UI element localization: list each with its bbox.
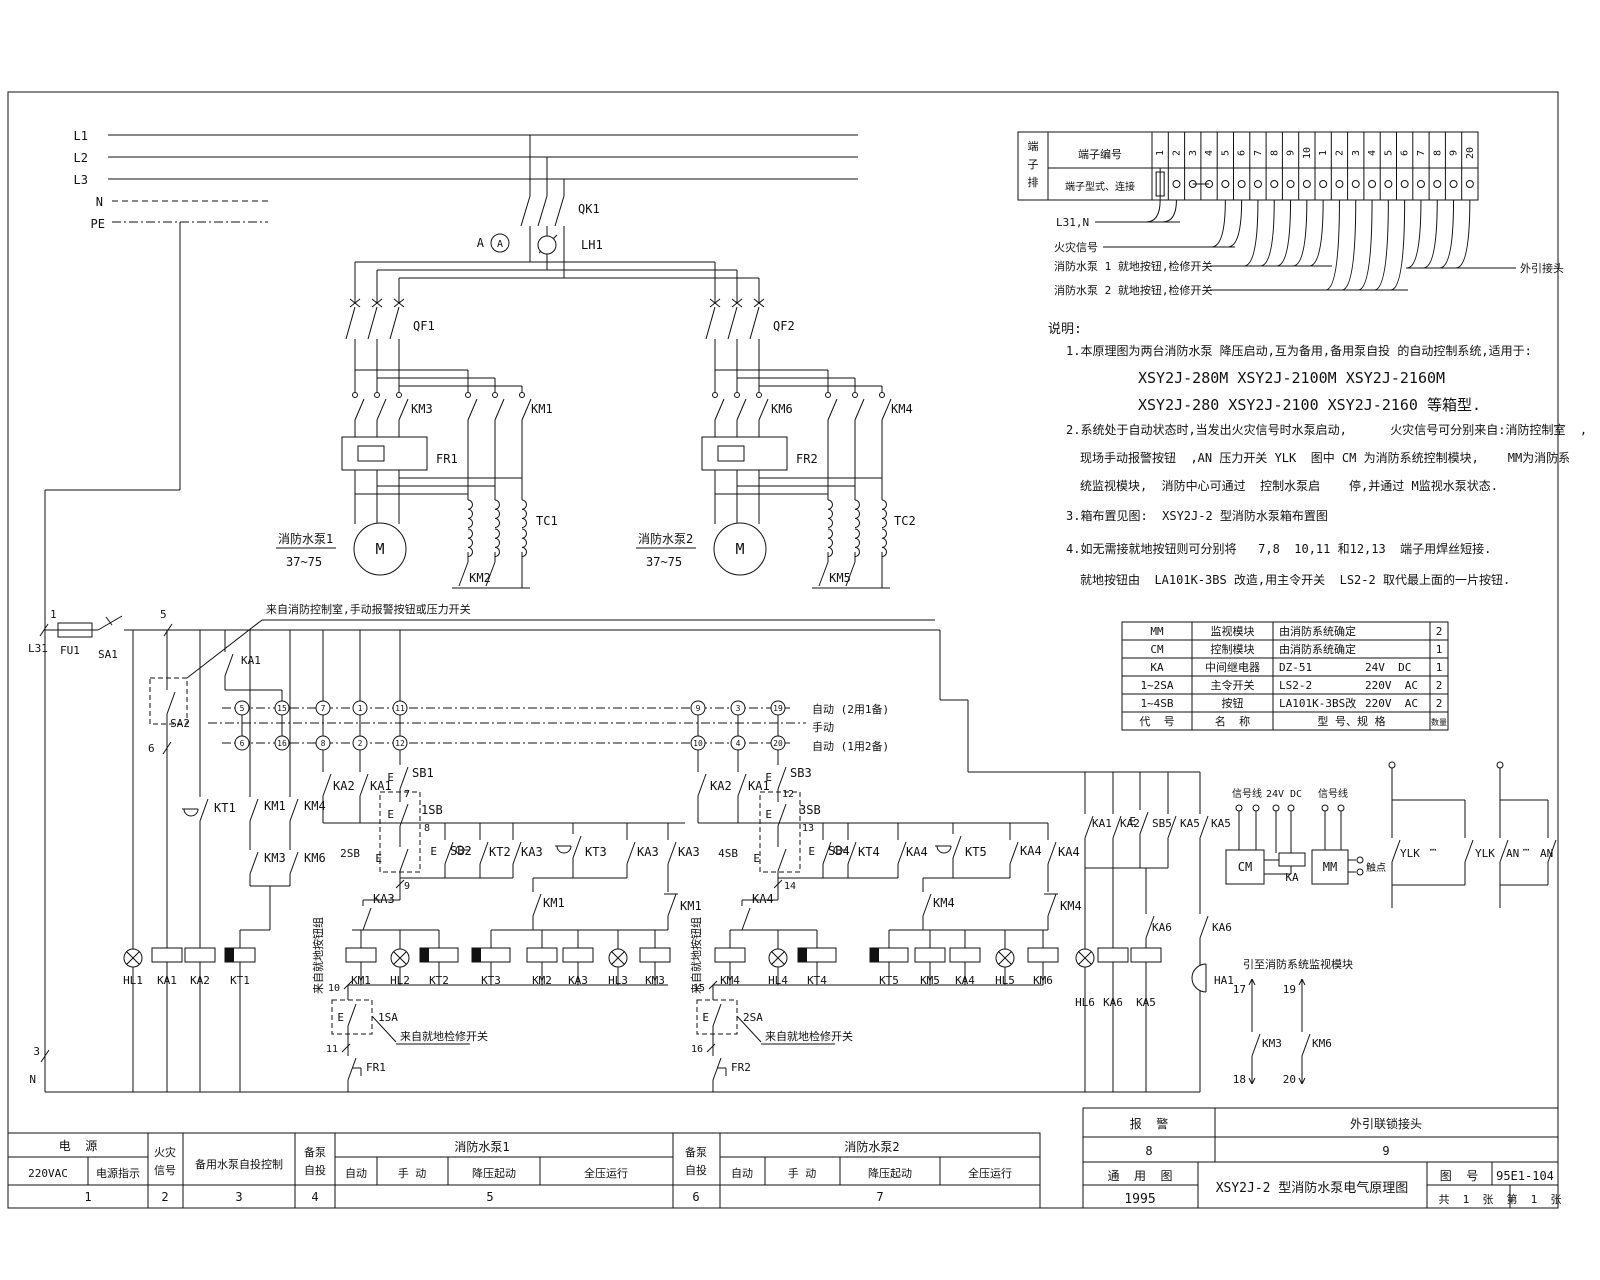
terminal-circle — [1385, 181, 1392, 188]
transformer-coil-icon — [828, 529, 833, 557]
contact-head — [375, 393, 380, 398]
box — [185, 948, 215, 962]
box — [563, 948, 593, 962]
terminal-number: 4 — [1367, 150, 1378, 156]
schematic-label: 来自消防控制室,手动报警按钮或压力开关 — [266, 602, 471, 616]
schematic-label: N — [29, 1073, 36, 1086]
terminal-dot — [1389, 762, 1395, 768]
schematic-label: 6 — [240, 739, 245, 748]
wire — [399, 399, 408, 420]
schematic-label: E — [337, 1011, 344, 1024]
schematic-label: 4 — [736, 739, 741, 748]
terminal-number: 1 — [1318, 150, 1329, 156]
leader-curve — [1423, 200, 1437, 268]
title-alarm: 报 警 — [1130, 1116, 1168, 1131]
schematic-label: 引至消防系统监视模块 — [1243, 957, 1353, 971]
component-cell: 1 — [1436, 661, 1443, 674]
schematic-label: 37~75 — [646, 555, 682, 569]
transformer-coil-icon — [855, 500, 860, 528]
wire — [953, 836, 961, 858]
terminal-number: 2 — [1334, 150, 1345, 156]
schematic-label: 5 — [160, 608, 167, 621]
strip-header: 电 源 — [59, 1139, 97, 1153]
terminal-circle — [1434, 181, 1441, 188]
wire — [290, 799, 298, 821]
transformer-coil-icon — [882, 500, 887, 528]
schematic-label: FU1 — [60, 644, 80, 657]
schematic-label: 手动 — [812, 720, 834, 734]
wire — [706, 307, 715, 339]
strip-cell: 220VAC — [28, 1167, 68, 1180]
drawing-no-label: 图 号 — [1440, 1169, 1478, 1183]
wire — [742, 908, 750, 930]
schematic-label: KM3 — [411, 402, 433, 416]
leader-curve — [1244, 200, 1258, 266]
note-line: XSY2J-280M XSY2J-2100M XSY2J-2160M — [1138, 369, 1445, 387]
wire — [923, 894, 931, 916]
contact-head — [826, 393, 831, 398]
leader-curve — [1407, 200, 1421, 268]
transformer-coil-icon — [468, 529, 473, 557]
schematic-label: 17 — [1233, 983, 1246, 996]
terminal-number: 3 — [1351, 150, 1362, 156]
terminal-number: 1 — [1155, 150, 1166, 156]
component-cell: DZ-51 — [1279, 661, 1312, 674]
component-cell: 主令开关 — [1211, 678, 1255, 692]
schematic-label: E — [765, 808, 772, 821]
terminal-number: 6 — [1400, 150, 1411, 156]
wire — [668, 894, 676, 916]
schematic-label: KT2 — [489, 845, 511, 859]
wire — [225, 654, 233, 676]
wire — [819, 562, 828, 586]
timer-coil-mark — [225, 948, 234, 962]
schematic-label: 3 — [736, 704, 741, 713]
schematic-label: KA3 — [373, 892, 395, 906]
schematic-label: 8 — [321, 739, 326, 748]
schematic-label: HL5 — [995, 974, 1015, 987]
terminal-circle — [1401, 181, 1408, 188]
terminal-circle — [1303, 181, 1310, 188]
schematic-label: KM3 — [264, 851, 286, 865]
schematic-label: E — [387, 808, 394, 821]
terminal-number: 7 — [1416, 150, 1427, 156]
schematic-label: KM5 — [920, 974, 940, 987]
wire — [187, 620, 262, 678]
schematic-label: E — [702, 1011, 709, 1024]
component-cell: LA101K-3BS改 — [1279, 696, 1356, 710]
wire — [348, 1058, 356, 1080]
component-cell: 1~2SA — [1140, 679, 1173, 692]
schematic-label: 3 — [33, 1045, 40, 1058]
component-cell: 监视模块 — [1211, 624, 1255, 638]
strip-cell: 电源指示 — [96, 1166, 140, 1180]
strip-cell: 全压运行 — [584, 1166, 628, 1180]
wire — [495, 399, 504, 420]
sheets-total: 共 1 张 — [1438, 1193, 1493, 1206]
transformer-coil-icon — [495, 529, 500, 557]
schematic-label: KA4 — [1020, 844, 1042, 858]
schematic-label: E — [375, 852, 382, 865]
wire — [390, 307, 399, 339]
schematic-label: FR2 — [731, 1061, 751, 1074]
wire — [778, 767, 786, 789]
box — [527, 948, 557, 962]
component-cell: LS2-2 — [1279, 679, 1312, 692]
wire — [738, 774, 746, 796]
leader-curve — [1228, 200, 1242, 247]
terminal-number: 9 — [1449, 150, 1460, 156]
schematic-label: 10 — [693, 739, 703, 748]
terminal-dot — [1236, 805, 1242, 811]
terminal-dot — [1273, 805, 1279, 811]
contact-head — [520, 393, 525, 398]
strip-cell: 降压起动 — [472, 1166, 516, 1180]
terminal-dot — [1322, 805, 1328, 811]
schematic-label: KA1 — [157, 974, 177, 987]
transformer-coil-icon — [522, 529, 527, 557]
schematic-label: FR1 — [436, 452, 458, 466]
component-cell: 2 — [1436, 625, 1443, 638]
schematic-label: HL4 — [768, 974, 788, 987]
contact-head — [757, 393, 762, 398]
note-line: XSY2J-280 XSY2J-2100 XSY2J-2160 等箱型. — [1138, 396, 1481, 414]
schematic-label: E — [430, 845, 437, 858]
wire — [167, 692, 175, 714]
schematic-label: KT2 — [429, 974, 449, 987]
component-cell: 24V DC — [1365, 661, 1411, 674]
component-cell: 220V AC — [1365, 697, 1418, 710]
wire — [715, 399, 724, 420]
wire — [521, 196, 530, 226]
schematic-label: KA5 — [1211, 817, 1231, 830]
wire — [368, 307, 377, 339]
strip-cell: 自动 — [345, 1167, 367, 1180]
schematic-label: 1 — [358, 704, 363, 713]
terminal-number: 6 — [1237, 150, 1248, 156]
note-line: 现场手动报警按钮 ,AN 压力开关 YLK 图中 CM 为消防系统控制模块, M… — [1080, 450, 1570, 465]
wire — [522, 399, 531, 420]
schematic-label: CM — [1238, 860, 1252, 874]
terminal-circle — [1352, 181, 1359, 188]
schematic-label: ⋯ — [1523, 843, 1530, 856]
strip-cell: 手 动 — [788, 1166, 817, 1180]
schematic-label: SB2 — [450, 844, 472, 858]
schematic-label: 16 — [277, 739, 287, 748]
wire — [1200, 916, 1208, 938]
schematic-label: KM2 — [532, 974, 552, 987]
schematic-label: 信号线 — [1318, 787, 1348, 800]
wire — [200, 799, 208, 821]
schematic-label: AN — [1540, 847, 1553, 860]
wire — [855, 399, 864, 420]
schematic-label: PE — [91, 217, 105, 231]
title-type: 通 用 图 — [1108, 1169, 1173, 1183]
contact-head — [353, 393, 358, 398]
component-cell: 由消防系统确定 — [1279, 624, 1356, 638]
contact-head — [466, 393, 471, 398]
wire — [355, 399, 364, 420]
schematic-label: LH1 — [581, 238, 603, 252]
schematic-label: KM1 — [264, 799, 286, 813]
leader-curve — [1162, 200, 1176, 222]
wire — [750, 307, 759, 339]
wire — [1252, 1034, 1260, 1056]
strip-number: 7 — [876, 1190, 883, 1204]
drawing-sheet: XSY2J-2 型消防水泵电气原理图 123456789101234567892… — [0, 0, 1600, 1280]
terminal-group-label: 火灾信号 — [1054, 240, 1098, 254]
schematic-label: 1SA — [378, 1011, 398, 1024]
schematic-label: SB5 — [1152, 817, 1172, 830]
sheet-no: 第 1 张 — [1506, 1192, 1561, 1206]
terminal-number: 3 — [1188, 150, 1199, 156]
schematic-label: 11 — [395, 704, 405, 713]
note-line: 就地按钮由 LA101K-3BS 改造,用主令开关 LS2-2 取代最上面的一片… — [1080, 572, 1510, 587]
wire — [468, 399, 477, 420]
schematic-label: 13 — [802, 823, 814, 834]
wire — [627, 842, 635, 864]
dashed-box — [760, 792, 800, 872]
component-cell: KA — [1150, 661, 1164, 674]
schematic-label: 1SB — [421, 803, 443, 817]
component-cell: 220V AC — [1365, 679, 1418, 692]
wire — [348, 1004, 356, 1026]
schematic-label: KA6 — [1103, 996, 1123, 1009]
component-cell: 数量 — [1431, 717, 1447, 727]
schematic-label: KA4 — [752, 892, 774, 906]
wire — [882, 399, 891, 420]
schematic-label: 信号线 — [1232, 787, 1262, 800]
transformer-coil-icon — [882, 529, 887, 557]
note-line: 统监视模块, 消防中心可通过 控制水泵启 停,并通过 M监视水泵状态. — [1080, 478, 1498, 493]
schematic-label: 20 — [1283, 1073, 1296, 1086]
wire — [668, 842, 676, 864]
schematic-label: E — [765, 771, 772, 784]
schematic-label: YLK — [1475, 847, 1495, 860]
schematic-label: KT5 — [965, 845, 987, 859]
schematic-label: 9 — [404, 881, 410, 892]
schematic-label: KM6 — [304, 851, 326, 865]
terminal-number: 8 — [1432, 150, 1443, 156]
schematic-label: 子 — [1028, 158, 1039, 171]
schematic-label: KM2 — [469, 571, 491, 585]
delay-symbol-icon — [937, 846, 951, 853]
wire — [538, 196, 547, 226]
schematic-label: KA1 — [241, 654, 261, 667]
timer-coil-mark — [870, 948, 879, 962]
schematic-label: KT3 — [585, 845, 607, 859]
schematic-label: ⋯ — [1430, 843, 1437, 856]
terminal-circle — [1287, 181, 1294, 188]
delay-symbol-icon — [557, 846, 571, 853]
schematic-label: 8 — [424, 823, 430, 834]
transformer-coil-icon — [468, 500, 473, 528]
terminal-circle — [1320, 181, 1327, 188]
schematic-label: KM4 — [720, 974, 740, 987]
schematic-label: KM3 — [645, 974, 665, 987]
schematic-label: 来自就地按钮组 — [311, 917, 325, 994]
component-cell: 2 — [1436, 697, 1443, 710]
terminal-circle — [1417, 181, 1424, 188]
schematic-label: 1 — [50, 608, 57, 621]
schematic-label: MM — [1323, 860, 1337, 874]
schematic-label: KM1 — [351, 974, 371, 987]
schematic-label: SB4 — [828, 844, 850, 858]
wire — [250, 852, 258, 874]
terminal-circle — [1173, 181, 1180, 188]
schematic-label: 5 — [240, 704, 245, 713]
schematic-canvas: 1234567891012345678920L31,N火灾信号消防水泵 1 就地… — [0, 0, 1600, 1280]
wire — [828, 399, 837, 420]
schematic-label: L3 — [74, 173, 88, 187]
wire — [573, 836, 581, 858]
schematic-label: M — [375, 540, 384, 558]
terminal-dot — [1338, 805, 1344, 811]
wire — [1392, 840, 1400, 862]
schematic-label: KA3 — [521, 845, 543, 859]
schematic-label: 消防水泵1 — [278, 531, 333, 546]
schematic-label: KM6 — [1033, 974, 1053, 987]
bell-icon — [1192, 964, 1206, 992]
strip-header: 火灾 — [154, 1145, 176, 1159]
strip-number: 6 — [692, 1190, 699, 1204]
strip-number: 1 — [84, 1190, 91, 1204]
schematic-label: FR1 — [366, 1061, 386, 1074]
contact-head — [713, 393, 718, 398]
schematic-label: L31 — [28, 642, 48, 655]
delay-symbol-icon — [184, 809, 198, 816]
leader-curve — [1277, 200, 1291, 266]
schematic-label: KA6 — [1212, 921, 1232, 934]
schematic-label: A — [477, 236, 485, 250]
terminal-group-label: 消防水泵 2 就地按钮,检修开关 — [1054, 283, 1213, 297]
schematic-label: 端子型式、连接 — [1065, 180, 1135, 193]
schematic-label: SB3 — [790, 766, 812, 780]
schematic-label: 7 — [321, 704, 326, 713]
schematic-label: SA1 — [98, 648, 118, 661]
terminal-group-label: 外引接头 — [1520, 261, 1564, 275]
wire — [707, 1044, 715, 1052]
wire — [400, 767, 408, 789]
wire — [513, 842, 521, 864]
leader-curve — [1260, 200, 1274, 266]
schematic-label: N — [96, 195, 103, 209]
leader-curve — [1391, 200, 1405, 290]
terminal-dot — [1253, 805, 1259, 811]
schematic-label: KA2 — [710, 779, 732, 793]
box — [718, 446, 744, 461]
strip-number: 2 — [161, 1190, 168, 1204]
schematic-labels: 1234567891012345678920L31,N火灾信号消防水泵 1 就地… — [28, 129, 1600, 1207]
wire — [555, 196, 564, 226]
timer-coil-mark — [420, 948, 429, 962]
schematic-label: 7 — [404, 789, 410, 800]
box — [1028, 948, 1058, 962]
schematic-label: KA3 — [568, 974, 588, 987]
title-alarm-no: 8 — [1145, 1144, 1152, 1158]
schematic-label: 16 — [691, 1044, 703, 1055]
component-cell: 1~4SB — [1140, 697, 1173, 710]
component-cell: 名 称 — [1215, 714, 1250, 728]
schematic-label: KA4 — [1058, 845, 1080, 859]
box — [152, 948, 182, 962]
schematic-label: KT4 — [807, 974, 827, 987]
wire — [1465, 840, 1473, 862]
box — [1279, 853, 1305, 866]
schematic-label: 自动 (1用2备) — [812, 739, 889, 753]
terminal-dot — [1357, 869, 1363, 875]
note-line: 4.如无需接就地按钮则可分别将 7,8 10,11 和12,13 端子用焊丝短接… — [1066, 541, 1491, 556]
terminal-number: 5 — [1220, 150, 1231, 156]
schematic-label: KA — [1285, 871, 1299, 884]
schematic-label: HL3 — [608, 974, 628, 987]
component-cell: 型 号、规 格 — [1317, 714, 1385, 728]
strip-header: 备用水泵自投控制 — [195, 1157, 283, 1171]
wire — [759, 399, 768, 420]
schematic-label: 12 — [395, 739, 405, 748]
timer-coil-mark — [798, 948, 807, 962]
schematic-label: YLK — [1400, 847, 1420, 860]
strip-header: 消防水泵2 — [844, 1139, 899, 1154]
wire — [1048, 842, 1056, 864]
schematic-label: 触点 — [1366, 861, 1386, 874]
schematic-label: E — [387, 771, 394, 784]
schematic-label: KM4 — [933, 896, 955, 910]
component-cell: 由消防系统确定 — [1279, 642, 1356, 656]
schematic-label: HL1 — [123, 974, 143, 987]
wire — [898, 842, 906, 864]
wire — [1048, 894, 1056, 916]
wire — [713, 1004, 721, 1026]
schematic-label: KA3 — [678, 845, 700, 859]
terminal-number: 7 — [1253, 150, 1264, 156]
transformer-coil-icon — [522, 500, 527, 528]
title-year: 1995 — [1124, 1192, 1155, 1207]
schematic-label: KT1 — [214, 801, 236, 815]
terminal-circle — [1238, 181, 1245, 188]
schematic-label: 15 — [277, 704, 287, 713]
schematic-label: 排 — [1028, 175, 1039, 189]
schematic-label: 14 — [784, 881, 796, 892]
schematic-label: KT1 — [230, 974, 250, 987]
transformer-coil-icon — [495, 500, 500, 528]
wire — [323, 774, 331, 796]
terminal-number: 5 — [1383, 150, 1394, 156]
leader-curve — [1325, 200, 1339, 290]
schematic-label: KA3 — [637, 845, 659, 859]
schematic-label: KM4 — [304, 799, 326, 813]
schematic-label: KM5 — [829, 571, 851, 585]
schematic-label: 3SB — [799, 803, 821, 817]
schematic-label: KT4 — [858, 845, 880, 859]
schematic-label: 2SA — [743, 1011, 763, 1024]
schematic-label: 自动 (2用1备) — [812, 702, 889, 716]
schematic-label: E — [1129, 815, 1136, 828]
schematic-label: 2SB — [340, 847, 360, 860]
schematic-label: HL6 — [1075, 996, 1095, 1009]
strip-header: 备泵 — [685, 1145, 707, 1159]
strip-number: 4 — [311, 1190, 318, 1204]
schematic-label: KM1 — [531, 402, 553, 416]
schematic-label: KA5 — [1180, 817, 1200, 830]
schematic-label: 12 — [782, 789, 794, 800]
transformer-coil-icon — [828, 500, 833, 528]
schematic-label: AN — [1506, 847, 1519, 860]
leader-curve — [1293, 200, 1307, 266]
contact-head — [397, 393, 402, 398]
terminal-circle — [1466, 181, 1473, 188]
strip-cell: 自动 — [731, 1167, 753, 1180]
